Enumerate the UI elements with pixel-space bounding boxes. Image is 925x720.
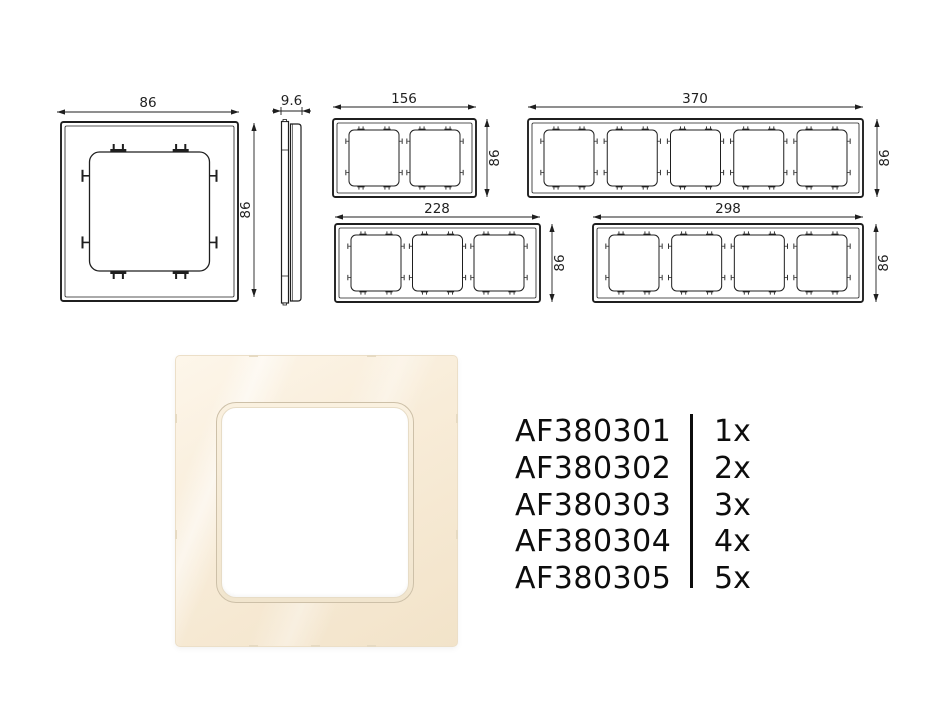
dim-height-label-3gang: 86 [552, 254, 568, 271]
mold-notch [367, 645, 376, 647]
product-spec-sheet: 86 86 9.6 156 86 370 86 [0, 0, 925, 720]
frame-outline-5gang [528, 119, 863, 197]
dim-width-label-5gang: 370 [682, 91, 708, 107]
mold-notch [367, 355, 376, 357]
product-code: AF380302 [515, 452, 671, 486]
dim-depth-label: 9.6 [281, 93, 302, 109]
dim-width-label-4gang: 298 [715, 201, 741, 217]
dim-height-label-1gang: 86 [238, 201, 254, 218]
mold-notch [249, 645, 258, 647]
drawing-1gang-front: 86 86 [40, 90, 270, 310]
drawing-3gang: 228 86 [327, 198, 575, 312]
product-qty: 3x [714, 489, 751, 523]
product-photo-1gang-frame [175, 355, 458, 647]
drawing-2gang: 156 86 [325, 90, 510, 205]
side-profile-outline [282, 120, 302, 306]
dim-height-label-5gang: 86 [877, 149, 893, 166]
product-code-row: AF380303 3x [515, 489, 795, 526]
mold-notch [175, 414, 177, 423]
drawing-side-profile: 9.6 [268, 90, 323, 315]
mold-notch [311, 645, 320, 647]
drawing-5gang: 370 86 [520, 90, 898, 205]
frame-outline-2gang [333, 119, 476, 197]
frame-outline-1gang [61, 122, 238, 301]
frame-outline-3gang [335, 224, 540, 302]
drawing-4gang: 298 86 [585, 198, 900, 312]
mold-notch [249, 355, 258, 357]
mold-notch [456, 530, 458, 539]
product-code: AF380304 [515, 525, 671, 559]
frame-opening-ring [216, 402, 414, 603]
dim-height-label-4gang: 86 [876, 254, 892, 271]
product-qty: 2x [714, 452, 751, 486]
frame-opening [221, 407, 409, 598]
product-code: AF380305 [515, 562, 671, 596]
frame-outline-4gang [593, 224, 863, 302]
product-code: AF380303 [515, 489, 671, 523]
mold-notch [456, 414, 458, 423]
product-qty: 1x [714, 415, 751, 449]
product-code-row: AF380305 5x [515, 562, 795, 599]
divider-line [690, 414, 693, 588]
product-qty: 4x [714, 525, 751, 559]
dim-width-label-2gang: 156 [391, 91, 417, 107]
product-qty: 5x [714, 562, 751, 596]
product-code-row: AF380301 1x [515, 415, 795, 452]
dim-width-label-3gang: 228 [424, 201, 450, 217]
product-code-row: AF380302 2x [515, 452, 795, 489]
product-code: AF380301 [515, 415, 671, 449]
product-code-row: AF380304 4x [515, 525, 795, 562]
product-code-list: AF380301 1x AF380302 2x AF380303 3x AF38… [515, 415, 795, 595]
dim-width-label-1gang: 86 [139, 95, 156, 111]
mold-notch [175, 530, 177, 539]
dim-height-label-2gang: 86 [487, 149, 503, 166]
